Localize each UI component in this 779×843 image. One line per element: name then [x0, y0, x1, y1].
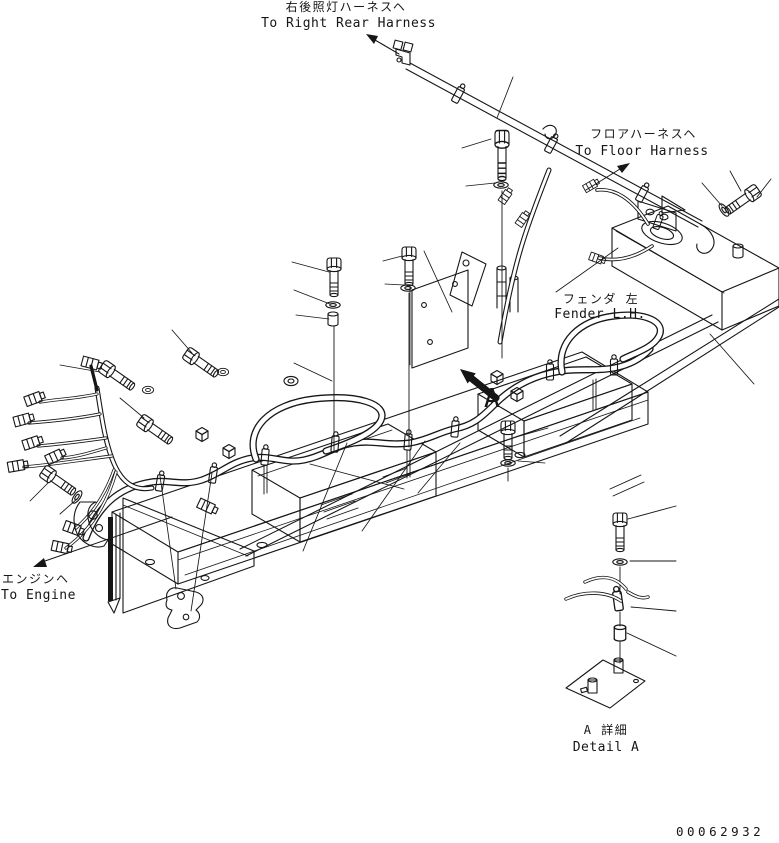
- to-floor-harness-arrow: [586, 163, 630, 190]
- z-bracket: [166, 588, 203, 629]
- label-right-rear-harness-en: To Right Rear Harness: [226, 17, 471, 31]
- main-bracket-platform: [108, 299, 779, 613]
- diagram-page: 右後照灯ハーネスヘ To Right Rear Harness フロアハーネスヘ…: [0, 0, 779, 843]
- drawing-number: 00062932: [676, 825, 764, 839]
- label-floor-harness-jp: フロアハーネスヘ: [566, 128, 721, 141]
- engine-connector-cluster: [7, 356, 219, 554]
- detail-a-view: [566, 506, 676, 708]
- label-detail-a-en: Detail A: [552, 741, 660, 755]
- section-marker-a: A: [484, 385, 500, 414]
- label-fender-en: Fender L.H.: [544, 308, 656, 322]
- label-floor-harness-en: To Floor Harness: [556, 145, 728, 159]
- label-fender-jp: フェンダ 左: [551, 293, 651, 306]
- label-engine-jp: エンジンヘ: [2, 573, 70, 586]
- hook-fitting: [543, 125, 556, 138]
- label-detail-a-jp: A 詳細: [556, 724, 656, 737]
- label-right-rear-harness-jp: 右後照灯ハーネスヘ: [236, 1, 456, 14]
- label-engine-en: To Engine: [1, 589, 76, 603]
